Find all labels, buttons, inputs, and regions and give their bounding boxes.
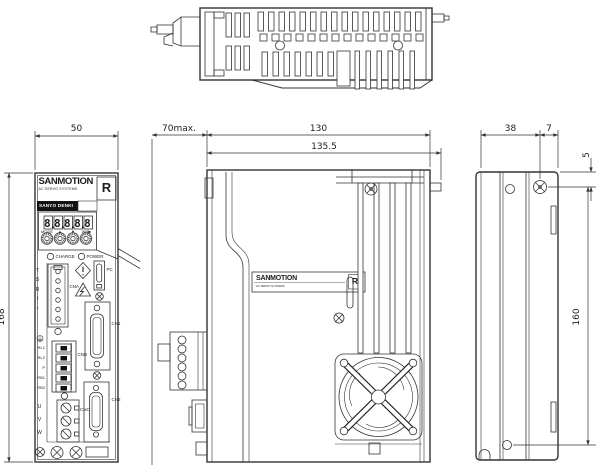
side-view bbox=[158, 170, 441, 462]
up-button bbox=[54, 233, 66, 245]
terminal-label-s: S bbox=[33, 278, 42, 283]
drawing-linework bbox=[0, 0, 600, 469]
side-terminal-connector bbox=[158, 332, 207, 390]
terminal-label-t: T bbox=[33, 269, 42, 274]
dim-mount-pitch: 160 bbox=[573, 300, 583, 334]
mounting-hole-top bbox=[534, 181, 547, 194]
servo-amplifier-outline-drawing: 50 70max. 130 135.5 38 7 5 160 168 SANMO… bbox=[0, 0, 600, 469]
mode-key-label: MODE bbox=[40, 230, 54, 234]
down-key-label: ▼ bbox=[69, 230, 78, 234]
rear-body bbox=[476, 172, 558, 460]
ground-screw-icon bbox=[36, 448, 45, 457]
top-square-holes bbox=[260, 34, 423, 41]
dim-clearance: 70max. bbox=[146, 125, 212, 134]
dim-depth-body: 130 bbox=[207, 125, 430, 134]
screw-hole bbox=[61, 393, 67, 399]
write-button bbox=[80, 233, 92, 245]
warning-diamond-icon bbox=[76, 263, 91, 279]
top-vent-slots-lower bbox=[262, 52, 334, 76]
mounting-notch bbox=[479, 450, 490, 461]
terminal-screw-icon bbox=[70, 447, 82, 459]
pc-label: PC bbox=[107, 267, 112, 272]
dim-depth-total: 135.5 bbox=[207, 143, 441, 152]
connector-cnb bbox=[52, 341, 76, 392]
seven-segment-readout: 88888 bbox=[44, 218, 94, 229]
connector-cn1 bbox=[85, 302, 110, 370]
cnb-label: CNB bbox=[78, 352, 83, 357]
side-lower-connector bbox=[189, 400, 207, 432]
rear-slot-top bbox=[551, 206, 556, 234]
screw-icon bbox=[96, 293, 104, 301]
side-pin bbox=[430, 183, 441, 191]
mode-button bbox=[41, 233, 53, 245]
top-heatsink-fins bbox=[337, 51, 415, 89]
cn2-label: CN2 bbox=[112, 397, 117, 402]
dim-front-height: 168 bbox=[0, 300, 8, 334]
nameplate-subtitle: AC SERVO SYSTEMS bbox=[256, 285, 285, 288]
terminal-label-u: U bbox=[35, 405, 44, 410]
connector-cna bbox=[48, 264, 68, 335]
terminal-label-r2: r bbox=[33, 307, 42, 312]
connector-cn2 bbox=[84, 382, 109, 442]
rear-view bbox=[476, 172, 558, 460]
charge-led-label: CHARGE bbox=[56, 255, 75, 260]
cnc-label: CNC bbox=[80, 407, 85, 412]
terminal-label-v: V bbox=[35, 418, 44, 423]
rear-slot-bottom bbox=[551, 402, 556, 432]
power-led-icon bbox=[78, 253, 84, 259]
terminal-screw-icon bbox=[51, 447, 63, 459]
brand-logotype: SANMOTION bbox=[39, 177, 93, 187]
dim-hole-offset: 7 bbox=[540, 125, 558, 134]
rear-hole-bottom bbox=[503, 441, 512, 450]
cooling-fan bbox=[335, 354, 422, 440]
ground-symbol-icon bbox=[37, 336, 43, 342]
terminal-label-rl1: RL1 bbox=[33, 346, 45, 350]
top-vent-slots-left bbox=[226, 13, 250, 70]
nameplate-brand: SANMOTION bbox=[256, 275, 297, 282]
nameplate-r-logo: R bbox=[349, 277, 361, 286]
top-pin bbox=[432, 14, 444, 22]
cn1-label: CN1 bbox=[112, 321, 117, 326]
heatsink-fins bbox=[336, 170, 424, 462]
top-vent-slots-main bbox=[258, 12, 421, 31]
terminal-label-rb2: RB2 bbox=[33, 386, 45, 390]
terminal-label-p: P bbox=[33, 366, 45, 370]
write-key-label: WR▶ bbox=[79, 230, 94, 234]
pc-port bbox=[94, 261, 105, 290]
down-button bbox=[67, 233, 79, 245]
terminal-label-rb1: RB1 bbox=[33, 376, 45, 380]
terminal-label-w: W bbox=[35, 431, 44, 436]
dim-rear-width: 38 bbox=[481, 125, 540, 134]
screw-icon bbox=[93, 372, 101, 380]
top-screw-hole-right bbox=[394, 41, 403, 50]
cna-label: CNA bbox=[70, 284, 75, 289]
terminal-label-rl2: RL2 bbox=[33, 356, 45, 360]
maker-label: SANYO DENKI bbox=[39, 204, 73, 209]
pushbuttons bbox=[41, 233, 92, 245]
top-view bbox=[151, 8, 449, 89]
power-led-label: POWER bbox=[87, 255, 104, 260]
dim-front-width: 50 bbox=[35, 125, 118, 134]
screw-icon bbox=[334, 313, 344, 323]
up-key-label: ▲ bbox=[56, 230, 65, 234]
rating-plate bbox=[86, 447, 108, 457]
rear-hole-top bbox=[506, 185, 515, 194]
terminal-label-t2: t bbox=[33, 297, 42, 302]
terminal-label-r: R bbox=[33, 288, 42, 293]
top-screw-hole-left bbox=[276, 41, 285, 50]
top-connector bbox=[151, 17, 200, 46]
brand-r-logo: R bbox=[97, 181, 116, 194]
dim-hole-top: 5 bbox=[583, 138, 593, 172]
connector-cnc bbox=[57, 400, 79, 442]
charge-led-icon bbox=[47, 253, 53, 259]
brand-subtitle: AC SERVO SYSTEMS bbox=[39, 188, 78, 192]
